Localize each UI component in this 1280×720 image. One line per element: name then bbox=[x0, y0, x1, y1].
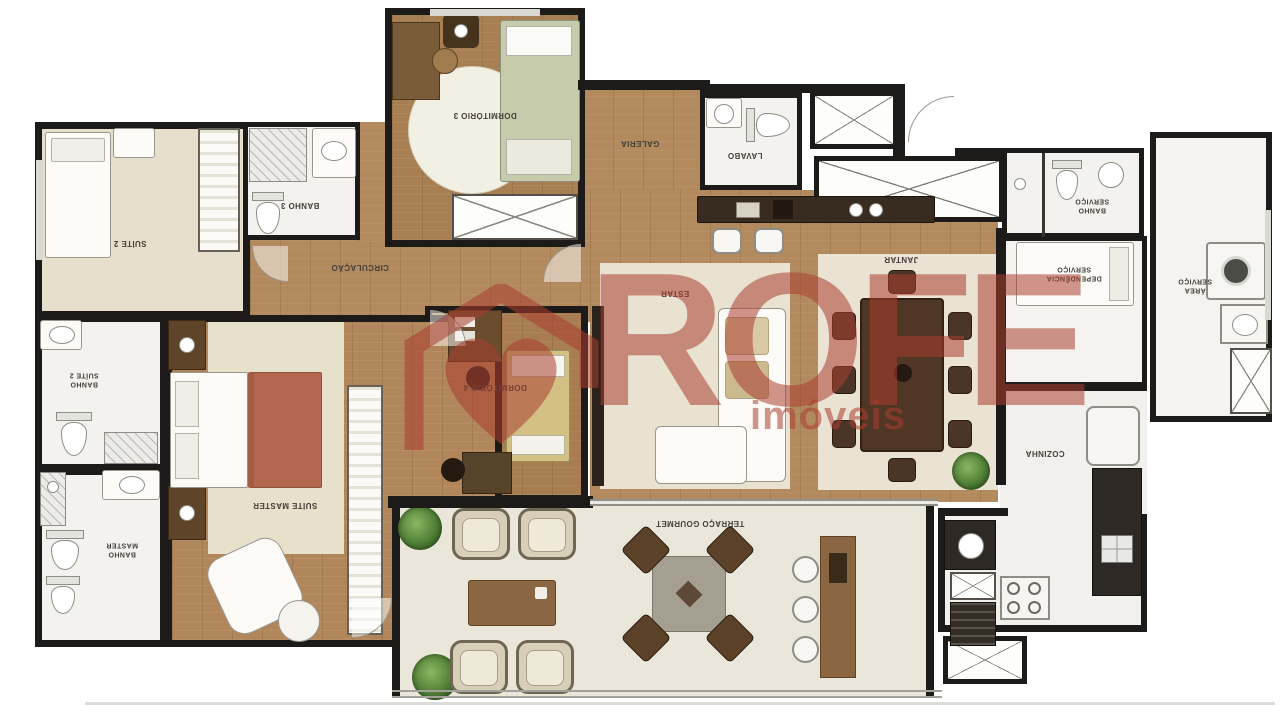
counter-icon bbox=[944, 520, 996, 570]
baseline-divider bbox=[85, 702, 1275, 705]
stove-icon bbox=[1000, 576, 1050, 620]
wall bbox=[893, 84, 905, 158]
appliance-icon bbox=[773, 200, 793, 219]
bed-icon bbox=[500, 20, 580, 182]
dining-table-icon bbox=[860, 298, 944, 452]
pillow-icon bbox=[511, 355, 565, 377]
stool-icon bbox=[792, 636, 819, 663]
wardrobe-icon bbox=[198, 128, 240, 252]
ceiling-fixture-icon bbox=[443, 14, 479, 48]
terrace-table-icon bbox=[652, 556, 726, 632]
chair-icon bbox=[948, 420, 972, 448]
hall-floor bbox=[358, 122, 387, 242]
chair-icon bbox=[888, 270, 916, 294]
coffee-table-icon bbox=[468, 580, 556, 626]
laundry-sink-icon bbox=[1220, 304, 1268, 344]
cushion-icon bbox=[725, 317, 769, 355]
lamp-icon bbox=[179, 505, 195, 521]
chair-icon bbox=[832, 420, 856, 448]
vanity-icon bbox=[40, 320, 82, 350]
sink-icon bbox=[714, 104, 734, 124]
cozinha-label: COZINHA bbox=[1002, 448, 1088, 458]
sink-icon bbox=[119, 476, 145, 494]
window-icon bbox=[1265, 210, 1271, 320]
balcony-rail-icon bbox=[392, 690, 942, 698]
stool-icon bbox=[754, 228, 784, 254]
cabinet-icon bbox=[1230, 348, 1272, 414]
blanket-icon bbox=[506, 139, 572, 175]
counter-icon bbox=[1092, 468, 1142, 596]
armchair-icon bbox=[450, 640, 508, 694]
dish-icon bbox=[736, 202, 760, 218]
door-swing-icon bbox=[908, 96, 954, 142]
fridge-icon bbox=[1086, 406, 1140, 466]
cushion-icon bbox=[725, 361, 769, 399]
bed-icon bbox=[170, 372, 248, 488]
dependencia-servico-label: DEPENDÊNCIA SERVIÇO bbox=[1024, 264, 1124, 282]
wall bbox=[700, 84, 900, 93]
stool-icon bbox=[792, 556, 819, 583]
vanity-icon bbox=[312, 128, 356, 178]
wall bbox=[388, 496, 593, 508]
banho-master-label: BANHO MASTER bbox=[86, 540, 158, 558]
window-icon bbox=[36, 160, 43, 260]
shower-icon bbox=[249, 128, 307, 182]
vanity-icon bbox=[102, 470, 160, 500]
nightstand-icon bbox=[168, 486, 206, 540]
bar-items-icon bbox=[829, 553, 847, 583]
circulacao-label: CIRCULAÇÃO bbox=[305, 262, 415, 272]
chair-icon bbox=[888, 458, 916, 482]
area-servico-label: ÁREA SERVIÇO bbox=[1158, 276, 1232, 294]
dormitorio-3-label: DORMITÓRIO 3 bbox=[420, 110, 550, 120]
banho-suite-2-label: BANHO SUÍTE 2 bbox=[48, 370, 120, 388]
wardrobe-icon bbox=[462, 452, 512, 494]
shower-head-icon bbox=[47, 481, 59, 493]
sink-icon bbox=[49, 326, 75, 344]
plant-icon bbox=[952, 452, 990, 490]
burner-icon bbox=[1028, 601, 1041, 614]
jantar-label: JANTAR bbox=[866, 254, 936, 264]
counter-icon bbox=[697, 196, 935, 223]
pillow-icon bbox=[175, 433, 199, 479]
bar-counter-icon bbox=[820, 536, 856, 678]
stool-icon bbox=[712, 228, 742, 254]
centerpiece-icon bbox=[676, 581, 703, 608]
chair-icon bbox=[948, 366, 972, 394]
shower-icon bbox=[104, 432, 158, 464]
wall bbox=[955, 148, 1007, 157]
pillow-icon bbox=[51, 138, 105, 162]
toilet-icon bbox=[746, 108, 792, 142]
dormitorio-4-label: DORMITÓRIO 4 bbox=[435, 382, 555, 392]
ottoman-icon bbox=[278, 600, 320, 642]
nightstand-icon bbox=[168, 320, 206, 370]
wall bbox=[996, 228, 1006, 485]
stool-icon bbox=[792, 596, 819, 623]
plant-icon bbox=[398, 506, 442, 550]
tray-icon bbox=[535, 587, 547, 599]
pillow-icon bbox=[506, 26, 572, 56]
centerpiece-icon bbox=[894, 364, 912, 382]
chair-icon bbox=[948, 312, 972, 340]
desk-chair-icon bbox=[432, 48, 458, 74]
hall-closet-icon bbox=[810, 91, 898, 149]
sink-icon bbox=[869, 203, 883, 217]
dresser-icon bbox=[113, 128, 155, 158]
burner-icon bbox=[1007, 601, 1020, 614]
shower-icon bbox=[40, 472, 66, 526]
burner-icon bbox=[1028, 582, 1041, 595]
sink-icon bbox=[1101, 535, 1133, 563]
lamp-icon bbox=[179, 337, 195, 353]
blanket-icon bbox=[511, 435, 565, 455]
wall bbox=[578, 80, 710, 90]
oven-tower-icon bbox=[950, 602, 996, 646]
sink-icon bbox=[958, 533, 984, 559]
toilet-icon bbox=[46, 530, 84, 572]
toilet-icon bbox=[252, 192, 284, 236]
wardrobe-icon bbox=[452, 194, 578, 240]
bidet-icon bbox=[46, 576, 80, 616]
lavabo-label: LAVABO bbox=[710, 150, 780, 160]
banho-servico-label: BANHO SERVIÇO bbox=[1048, 196, 1136, 214]
suite-master-label: SUÍTE MASTER bbox=[230, 500, 340, 510]
bed-icon bbox=[506, 350, 570, 462]
floor-plan: SUÍTE 2 BANHO 3 DORMITÓRIO 3 CIRCULAÇÃO … bbox=[0, 0, 1280, 720]
chair-icon bbox=[832, 366, 856, 394]
burner-icon bbox=[1007, 582, 1020, 595]
sink-icon bbox=[1232, 314, 1258, 336]
cabinet-icon bbox=[950, 572, 996, 600]
armchair-icon bbox=[516, 640, 574, 694]
stool-icon bbox=[441, 458, 465, 482]
banho-3-label: BANHO 3 bbox=[268, 200, 332, 210]
duvet-icon bbox=[248, 372, 322, 488]
chair-icon bbox=[832, 312, 856, 340]
pillow-icon bbox=[175, 381, 199, 427]
armchair-icon bbox=[518, 508, 576, 560]
armchair-icon bbox=[452, 508, 510, 560]
suite-2-label: SUÍTE 2 bbox=[90, 238, 170, 248]
sofa-chaise-icon bbox=[655, 426, 747, 484]
vanity-icon bbox=[706, 98, 742, 128]
toilet-icon bbox=[56, 412, 92, 458]
galeria-label: GALERIA bbox=[600, 138, 680, 148]
terraco-gourmet-label: TERRAÇO GOURMET bbox=[630, 518, 770, 528]
window-icon bbox=[430, 9, 540, 16]
tv-cabinet-icon bbox=[592, 306, 604, 486]
sliding-door-icon bbox=[590, 499, 938, 506]
fixture-dot bbox=[454, 24, 468, 38]
shower-head-icon bbox=[1014, 178, 1026, 190]
sink-icon bbox=[849, 203, 863, 217]
sink-icon bbox=[321, 141, 347, 161]
estar-label: ESTAR bbox=[630, 288, 720, 298]
shower-partition bbox=[1042, 153, 1045, 237]
sink-icon bbox=[1098, 162, 1124, 188]
wall bbox=[938, 508, 1008, 516]
